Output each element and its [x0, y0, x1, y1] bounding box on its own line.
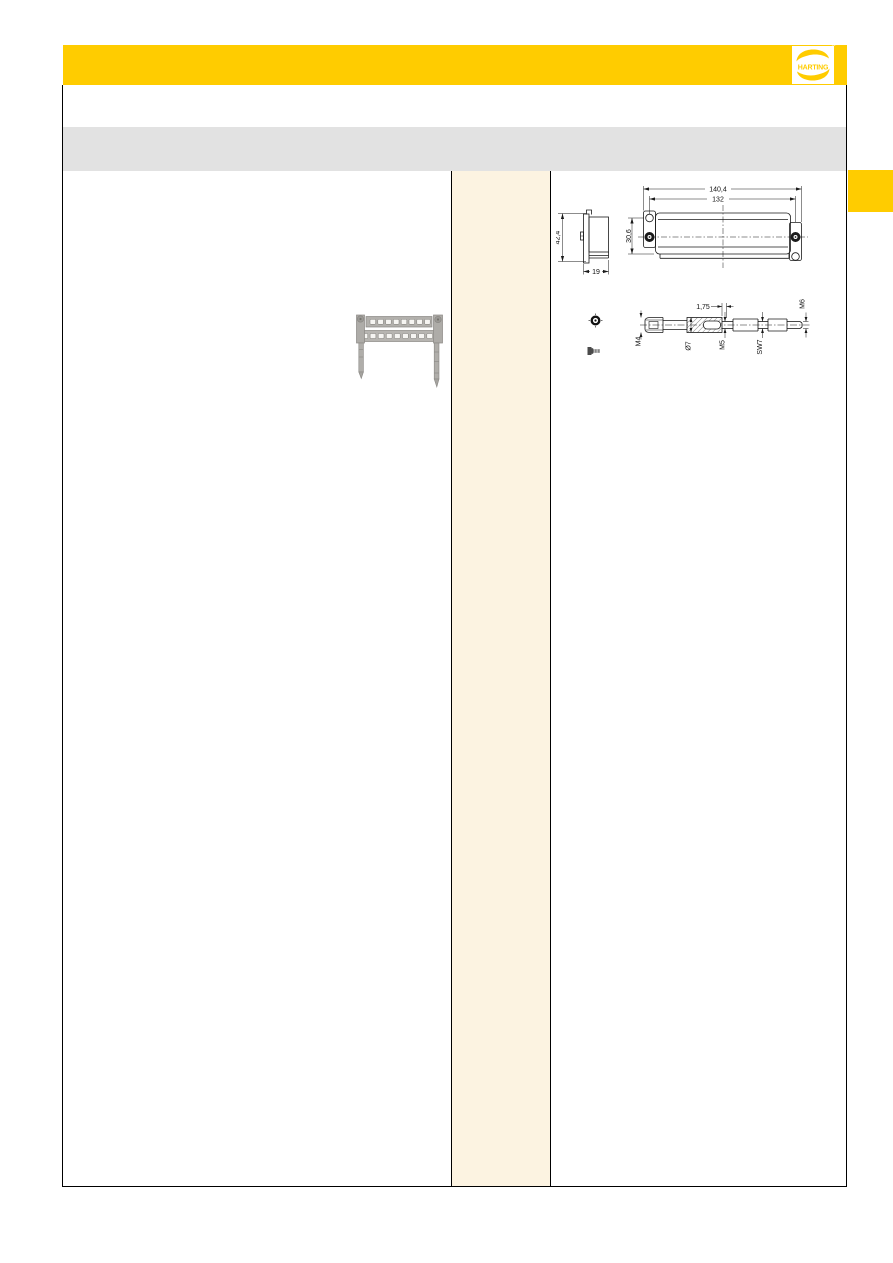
docking-frame [357, 315, 443, 343]
registered-trademark-mark: ® [831, 41, 836, 48]
column-divider-left [451, 171, 452, 1186]
dim-fixing-centers: 132 [712, 197, 724, 204]
screw-icon [588, 347, 601, 355]
catalog-page: HARTING ® [0, 0, 893, 1263]
header-yellow-bar [63, 45, 847, 85]
dim-shank-diameter: Ø7 [686, 341, 693, 350]
hood-dimension-drawing: 42,4 19 140,4 132 30,6 [556, 178, 808, 282]
dim-side-height: 42,4 [556, 231, 562, 245]
logo-wordmark: HARTING [798, 65, 829, 72]
column-divider-right [550, 171, 551, 1186]
front-rail-slots [362, 334, 433, 339]
left-page-border [62, 85, 63, 1186]
cream-column [452, 171, 550, 1186]
right-page-border [846, 85, 847, 1186]
dim-front-height: 30,6 [626, 229, 633, 243]
dim-side-depth: 19 [592, 269, 600, 276]
bottom-page-border [62, 1186, 847, 1187]
dim-pitch: 1,75 [696, 304, 710, 311]
dim-thread-middle: M5 [720, 340, 727, 350]
dim-thread-end: M6 [800, 299, 807, 309]
guide-pins [359, 343, 439, 387]
harting-logo-graphic: HARTING [792, 46, 834, 84]
logo-top-swoosh [797, 50, 830, 62]
docking-frame-with-guide-pins-photo [350, 306, 450, 390]
hood-side-view [558, 210, 609, 275]
harting-logo: HARTING [792, 46, 834, 84]
section-thumb-tab [848, 170, 893, 212]
dim-overall-width: 140,4 [709, 187, 727, 194]
dim-thread-tip: M4 [636, 337, 643, 347]
gray-band [63, 127, 847, 171]
guide-pin-dimension-drawing: M4 1,75 Ø7 M5 SW7 M6 [552, 290, 812, 362]
nut-end-view-icon [589, 314, 603, 328]
guide-pin-outline [640, 303, 810, 340]
dim-wrench-size: SW7 [757, 339, 764, 354]
